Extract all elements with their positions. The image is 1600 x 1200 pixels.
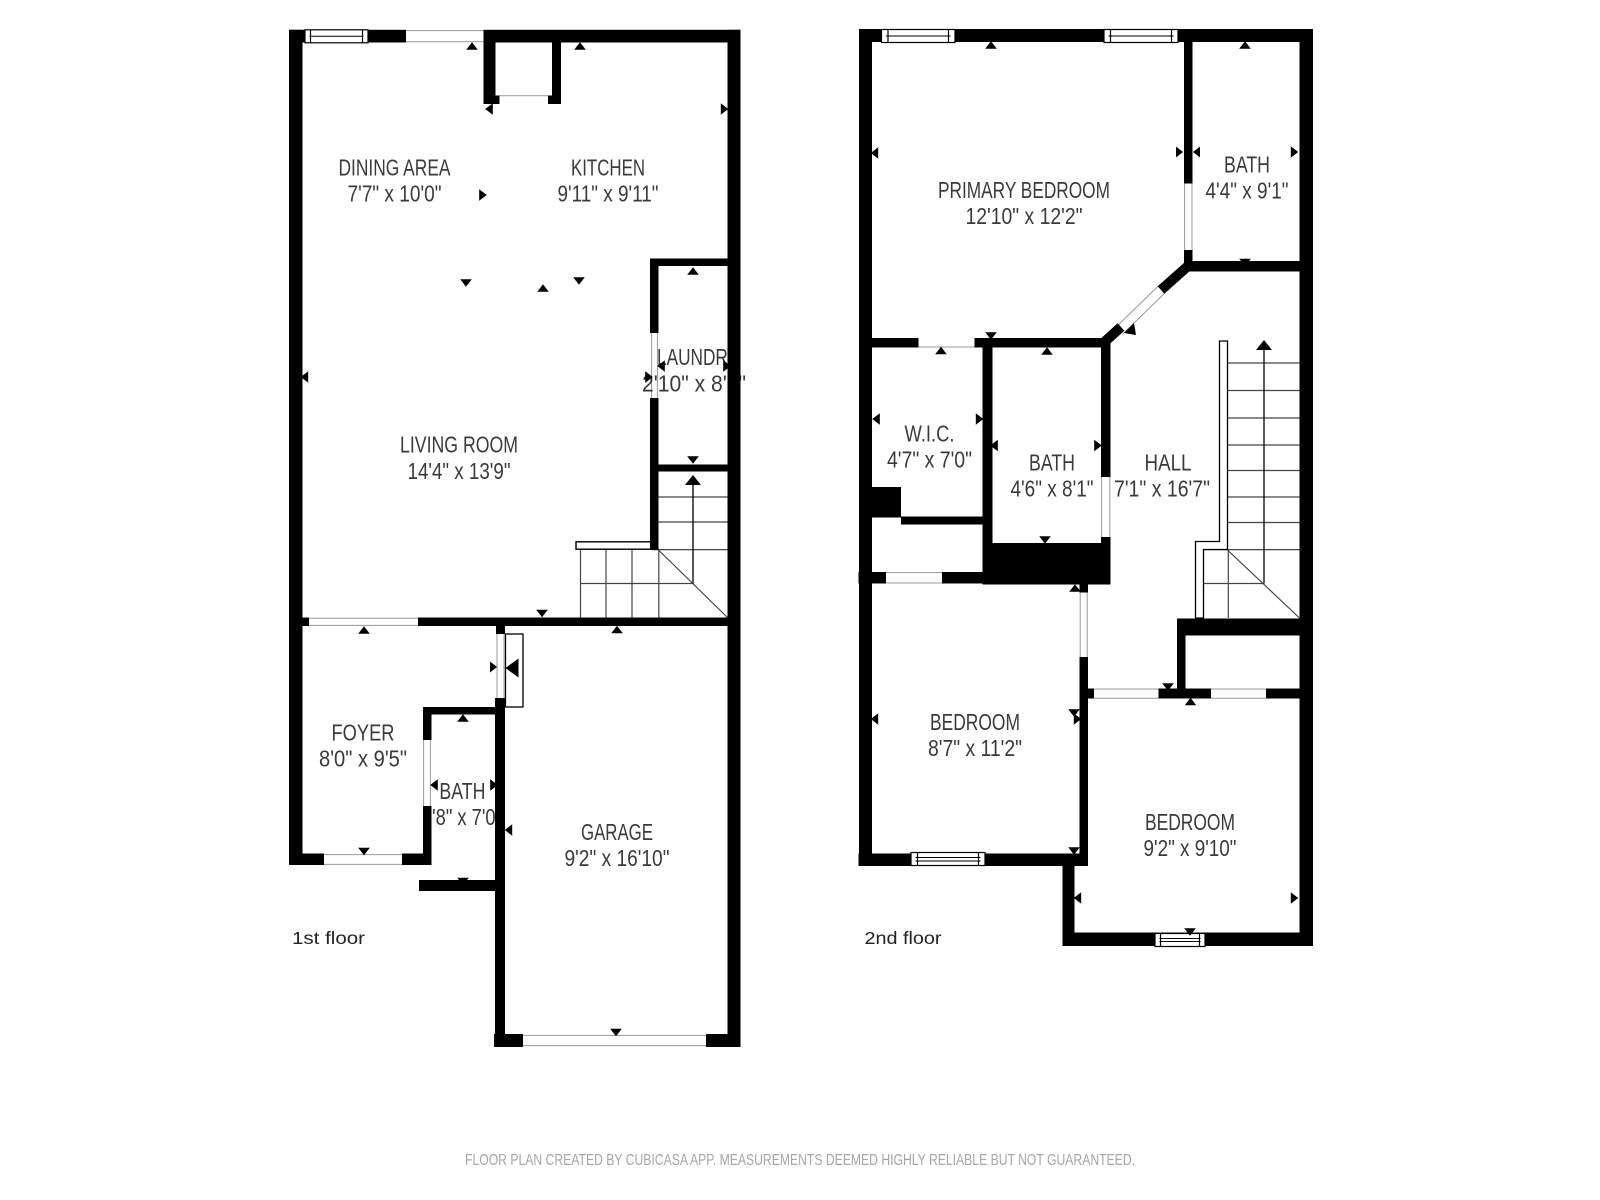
svg-text:PRIMARY BEDROOM: PRIMARY BEDROOM	[938, 177, 1110, 203]
svg-text:1st floor: 1st floor	[292, 928, 365, 948]
svg-text:2nd floor: 2nd floor	[865, 928, 942, 948]
svg-text:12'10" x 12'2": 12'10" x 12'2"	[966, 203, 1083, 229]
svg-text:4'6" x 8'1": 4'6" x 8'1"	[1011, 476, 1094, 502]
svg-text:9'2" x 9'10": 9'2" x 9'10"	[1144, 835, 1237, 861]
svg-text:BATH: BATH	[439, 778, 485, 804]
svg-text:7'1" x 16'7": 7'1" x 16'7"	[1114, 476, 1210, 502]
svg-text:FOYER: FOYER	[332, 719, 395, 745]
svg-text:BEDROOM: BEDROOM	[930, 709, 1020, 735]
svg-text:14'4" x 13'9": 14'4" x 13'9"	[408, 458, 511, 484]
svg-text:7'7" x 10'0": 7'7" x 10'0"	[348, 181, 442, 207]
svg-text:9'2" x 16'10": 9'2" x 16'10"	[565, 845, 670, 871]
svg-text:DINING AREA: DINING AREA	[339, 155, 451, 181]
svg-text:4'4" x 9'1": 4'4" x 9'1"	[1206, 178, 1289, 204]
svg-text:GARAGE: GARAGE	[581, 819, 653, 845]
svg-text:4'7" x 7'0": 4'7" x 7'0"	[887, 447, 972, 473]
svg-text:8'0" x 9'5": 8'0" x 9'5"	[319, 745, 407, 771]
svg-text:8'7" x 11'2": 8'7" x 11'2"	[928, 735, 1022, 761]
svg-text:BEDROOM: BEDROOM	[1145, 809, 1235, 835]
svg-text:BATH: BATH	[1029, 450, 1075, 476]
svg-text:BATH: BATH	[1224, 152, 1270, 178]
svg-text:LIVING ROOM: LIVING ROOM	[400, 432, 518, 458]
svg-text:FLOOR PLAN CREATED BY CUBICASA: FLOOR PLAN CREATED BY CUBICASA APP. MEAS…	[465, 1152, 1135, 1169]
svg-text:HALL: HALL	[1145, 450, 1192, 476]
svg-text:3'8" x 7'0": 3'8" x 7'0"	[422, 804, 502, 830]
svg-text:KITCHEN: KITCHEN	[571, 155, 645, 181]
svg-text:W.I.C.: W.I.C.	[905, 421, 955, 447]
svg-text:9'11" x 9'11": 9'11" x 9'11"	[558, 181, 659, 207]
